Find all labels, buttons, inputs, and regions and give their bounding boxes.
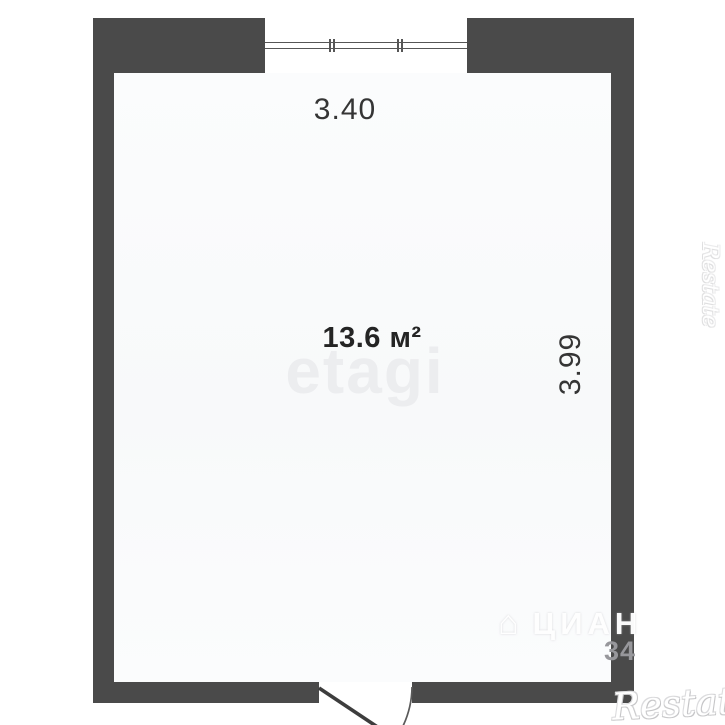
wall-top-left-segment xyxy=(93,18,265,73)
window xyxy=(265,18,467,73)
wall-left xyxy=(93,18,114,703)
dimension-width: 3.40 xyxy=(314,93,376,127)
etagi-watermark: etagi xyxy=(285,334,444,408)
door-arc-line xyxy=(403,687,412,725)
dimension-height: 3.99 xyxy=(554,333,588,395)
door-leaf-line xyxy=(319,688,412,725)
window-mullion-icon xyxy=(397,39,403,52)
wall-top-right-segment xyxy=(467,18,634,73)
window-mullion-icon xyxy=(329,39,335,52)
wall-bottom-right-segment xyxy=(412,682,634,703)
wall-right xyxy=(611,18,634,703)
window-glazing-line xyxy=(265,42,467,49)
floor-plan: 3.40 3.99 13.6 м² etagi ⌂ ЦИАН 34 Restat… xyxy=(0,0,725,725)
restate-watermark-side: Restate xyxy=(697,243,722,328)
cian-watermark-number: 34 xyxy=(604,636,636,667)
wall-bottom-left-segment xyxy=(93,682,319,703)
house-icon: ⌂ xyxy=(498,606,519,640)
restate-watermark-bottom: Restate xyxy=(611,678,725,725)
